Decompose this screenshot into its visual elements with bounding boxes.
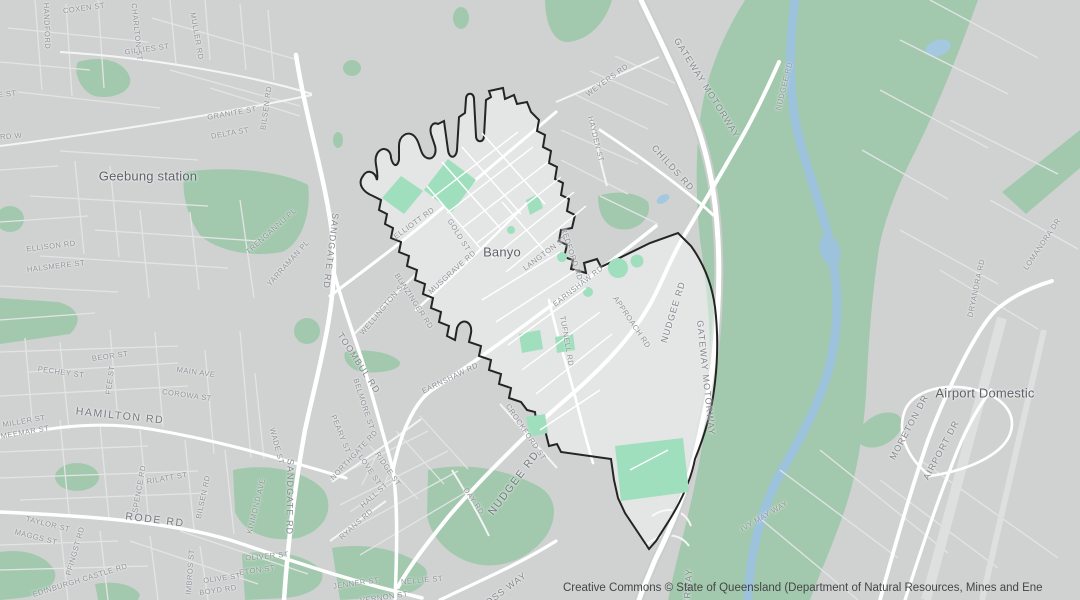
map-canvas[interactable]: HANDFORDCOXEN STCHARLTON STMULLER RDGILL… bbox=[0, 0, 1080, 600]
map-attribution: Creative Commons © State of Queensland (… bbox=[563, 582, 1043, 594]
base-map bbox=[0, 0, 1080, 600]
